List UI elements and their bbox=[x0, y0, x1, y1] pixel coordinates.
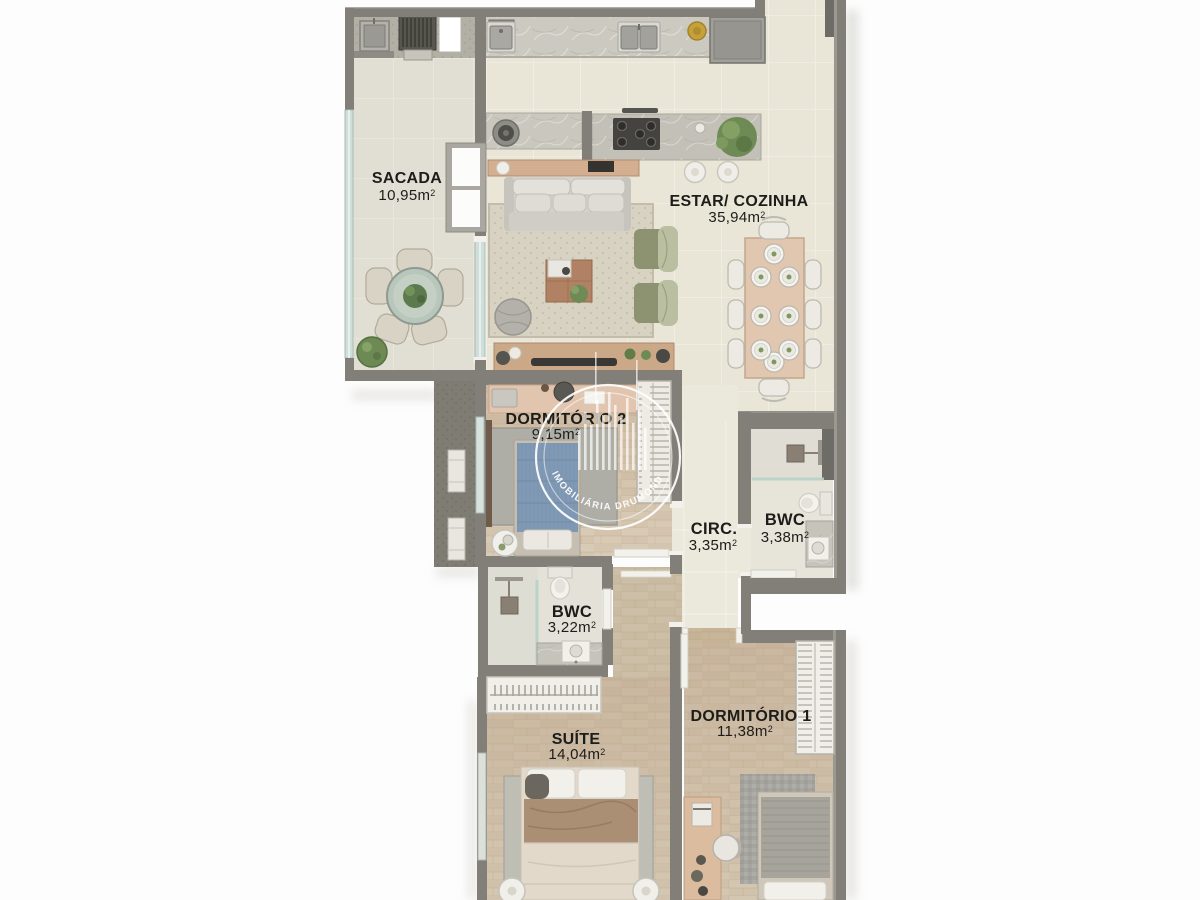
svg-text:SACADA: SACADA bbox=[372, 170, 442, 187]
svg-text:3,35m2: 3,35m2 bbox=[689, 537, 738, 554]
svg-text:10,95m2: 10,95m2 bbox=[378, 187, 435, 204]
svg-text:3,22m2: 3,22m2 bbox=[548, 619, 597, 636]
svg-text:3,38m2: 3,38m2 bbox=[761, 529, 810, 546]
svg-text:35,94m2: 35,94m2 bbox=[708, 209, 765, 226]
svg-text:ESTAR/ COZINHA: ESTAR/ COZINHA bbox=[669, 193, 808, 210]
svg-text:11,38m2: 11,38m2 bbox=[717, 723, 773, 740]
svg-text:CIRC.: CIRC. bbox=[691, 520, 737, 538]
svg-text:BWC: BWC bbox=[765, 511, 805, 529]
svg-text:14,04m2: 14,04m2 bbox=[548, 746, 605, 763]
